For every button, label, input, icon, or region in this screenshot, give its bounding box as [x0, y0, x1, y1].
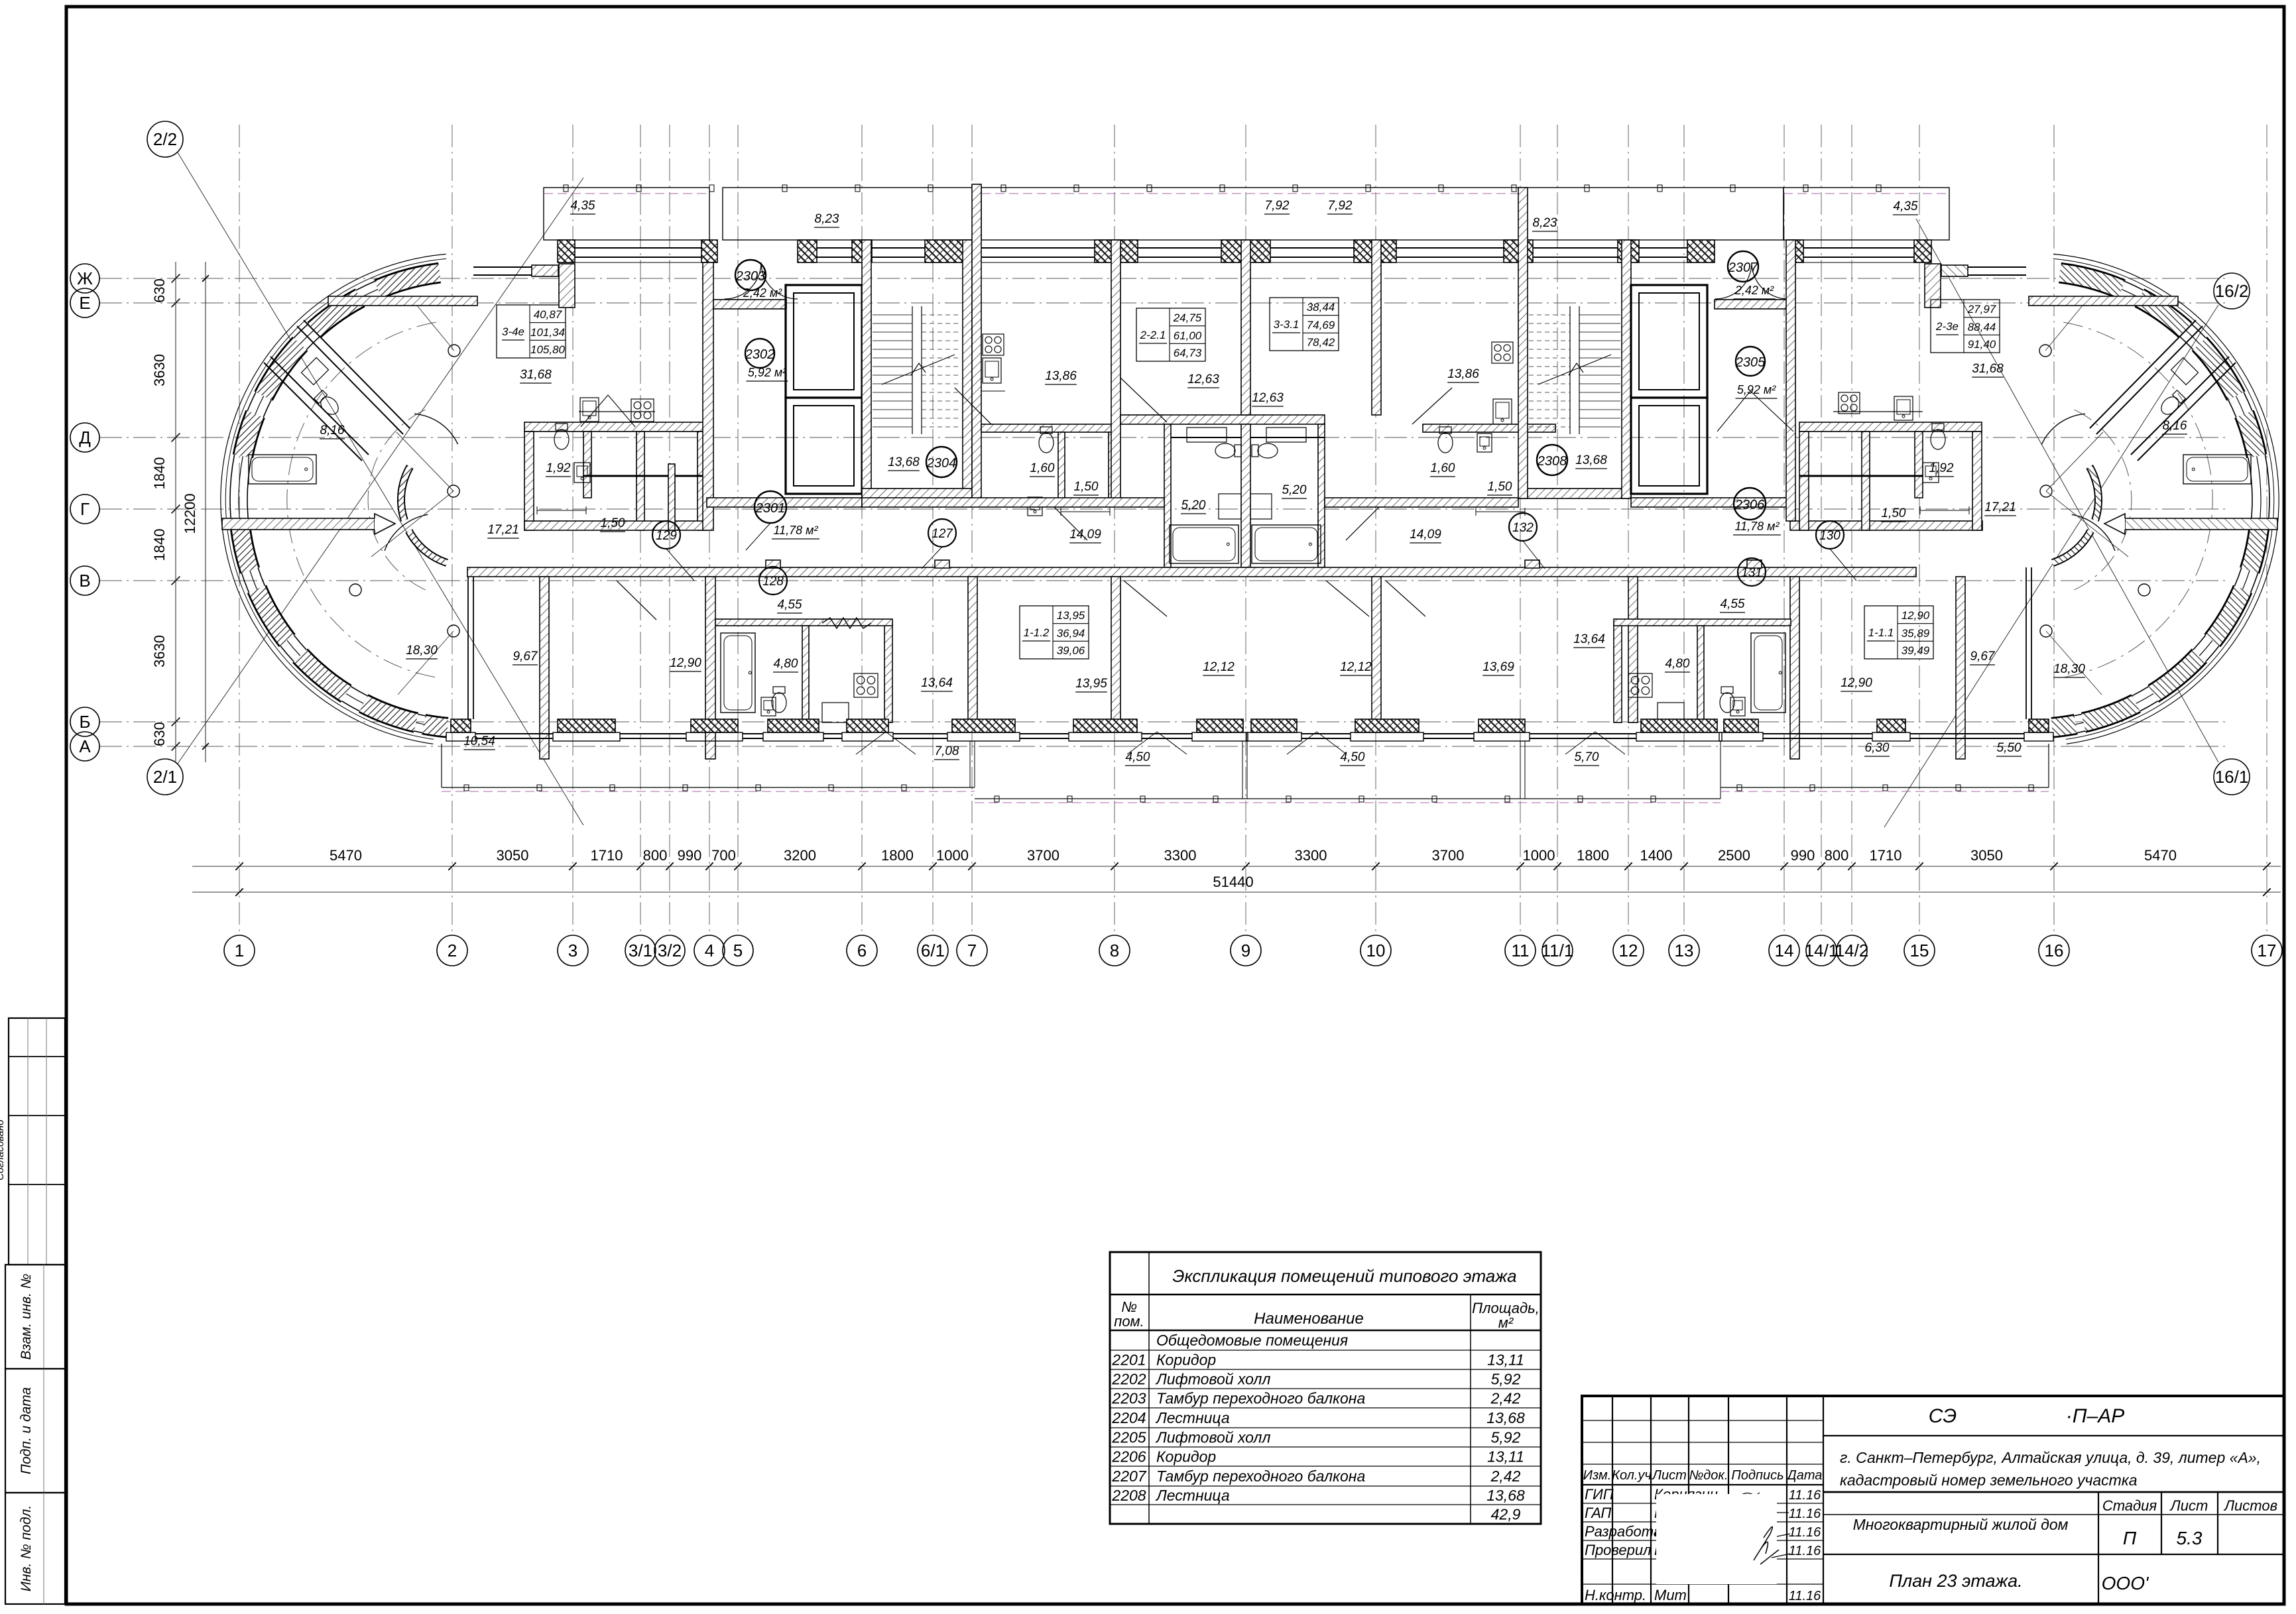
svg-text:Согласовано: Согласовано	[0, 1120, 6, 1181]
svg-text:м²: м²	[1498, 1314, 1514, 1331]
svg-text:пом.: пом.	[1114, 1313, 1144, 1330]
svg-text:4,55: 4,55	[778, 598, 802, 612]
svg-text:17: 17	[2258, 941, 2277, 960]
svg-text:2202: 2202	[1111, 1371, 1146, 1388]
svg-text:4: 4	[705, 941, 714, 960]
svg-text:13,69: 13,69	[1482, 660, 1514, 674]
svg-text:11.16: 11.16	[1789, 1488, 1821, 1503]
svg-text:11: 11	[1512, 941, 1530, 960]
svg-text:8: 8	[1110, 941, 1119, 960]
svg-text:2,42: 2,42	[1490, 1390, 1521, 1407]
svg-text:П: П	[2123, 1528, 2137, 1548]
svg-text:5,92 м²: 5,92 м²	[748, 366, 787, 379]
svg-text:990: 990	[1791, 847, 1815, 864]
svg-text:3050: 3050	[497, 847, 529, 864]
svg-text:1,60: 1,60	[1030, 461, 1055, 475]
svg-text:8,23: 8,23	[815, 212, 839, 226]
svg-text:88,44: 88,44	[1968, 321, 1996, 333]
svg-text:990: 990	[678, 847, 702, 864]
svg-text:Проверил: Проверил	[1585, 1542, 1652, 1558]
svg-text:5.3: 5.3	[2177, 1528, 2203, 1548]
svg-text:8,16: 8,16	[320, 424, 345, 437]
svg-text:16/1: 16/1	[2215, 767, 2249, 787]
svg-text:2/2: 2/2	[153, 129, 177, 149]
svg-text:Инв. № подл.: Инв. № подл.	[19, 1505, 34, 1591]
svg-text:4,35: 4,35	[1894, 200, 1918, 213]
svg-text:Тамбур переходного балкона: Тамбур переходного балкона	[1156, 1390, 1365, 1407]
svg-text:1800: 1800	[881, 847, 914, 864]
svg-text:Лифтовой холл: Лифтовой холл	[1155, 1429, 1270, 1446]
svg-text:128: 128	[762, 575, 784, 589]
svg-text:13,68: 13,68	[1575, 453, 1607, 467]
svg-text:Н.контр.: Н.контр.	[1585, 1587, 1646, 1603]
svg-text:Г: Г	[80, 499, 90, 519]
svg-text:3300: 3300	[1164, 847, 1197, 864]
svg-text:3/2: 3/2	[658, 941, 682, 960]
svg-text:12: 12	[1619, 941, 1638, 960]
svg-text:27,97: 27,97	[1967, 303, 1996, 316]
svg-text:Лист: Лист	[2169, 1497, 2208, 1514]
svg-text:ГАП: ГАП	[1585, 1505, 1611, 1521]
svg-text:12200: 12200	[182, 493, 198, 534]
svg-text:10,54: 10,54	[463, 734, 495, 748]
svg-text:4,80: 4,80	[774, 657, 798, 671]
svg-text:9: 9	[1241, 941, 1250, 960]
svg-text:1,92: 1,92	[1929, 461, 1954, 475]
svg-text:3200: 3200	[784, 847, 816, 864]
svg-text:78,42: 78,42	[1307, 336, 1335, 349]
svg-text:11,78 м²: 11,78 м²	[773, 524, 818, 537]
svg-text:12,63: 12,63	[1187, 373, 1219, 386]
svg-text:2500: 2500	[1718, 847, 1750, 864]
svg-text:3050: 3050	[1970, 847, 2003, 864]
svg-text:2206: 2206	[1111, 1448, 1146, 1466]
svg-text:14,09: 14,09	[1069, 528, 1101, 542]
svg-text:18,30: 18,30	[2053, 662, 2085, 676]
svg-text:14/1: 14/1	[1805, 941, 1839, 960]
svg-text:№док.: №док.	[1689, 1468, 1728, 1483]
svg-text:12,63: 12,63	[1252, 391, 1284, 405]
svg-text:Тамбур переходного балкона: Тамбур переходного балкона	[1156, 1468, 1365, 1485]
svg-text:кадастровый номер земельного у: кадастровый номер земельного участка	[1840, 1471, 2138, 1489]
svg-text:39,06: 39,06	[1057, 644, 1085, 657]
svg-text:7,92: 7,92	[1328, 199, 1353, 213]
svg-text:3-4е: 3-4е	[502, 325, 524, 338]
svg-text:1800: 1800	[1577, 847, 1609, 864]
svg-text:1,92: 1,92	[546, 461, 571, 475]
svg-text:1,50: 1,50	[1074, 480, 1099, 494]
svg-text:5,20: 5,20	[1282, 483, 1307, 497]
svg-text:12,12: 12,12	[1203, 660, 1235, 674]
svg-text:Многоквартирный жилой дом: Многоквартирный жилой дом	[1853, 1516, 2069, 1533]
svg-text:16: 16	[2045, 941, 2064, 960]
svg-text:12,90: 12,90	[670, 656, 701, 670]
svg-text:13,68: 13,68	[1486, 1409, 1525, 1426]
svg-text:13,86: 13,86	[1045, 369, 1077, 383]
svg-text:1,50: 1,50	[601, 516, 625, 530]
svg-text:Лифтовой холл: Лифтовой холл	[1155, 1371, 1270, 1388]
svg-text:6,30: 6,30	[1865, 741, 1890, 755]
svg-text:630: 630	[151, 722, 168, 746]
svg-text:г. Санкт–Петербург, Алтайская: г. Санкт–Петербург, Алтайская улица, д. …	[1840, 1449, 2261, 1466]
svg-text:2-3е: 2-3е	[1935, 320, 1959, 333]
svg-text:2,42 м²: 2,42 м²	[743, 286, 782, 300]
svg-text:12,90: 12,90	[1902, 609, 1930, 622]
svg-text:ГИП: ГИП	[1585, 1486, 1614, 1503]
svg-text:4,80: 4,80	[1665, 657, 1690, 671]
svg-text:3630: 3630	[151, 635, 168, 667]
svg-text:2303: 2303	[735, 269, 766, 284]
svg-text:2308: 2308	[1537, 454, 1567, 469]
svg-text:5470: 5470	[2144, 847, 2177, 864]
svg-text:11,78 м²: 11,78 м²	[1734, 520, 1780, 533]
svg-text:2301: 2301	[755, 501, 786, 516]
svg-text:1000: 1000	[936, 847, 969, 864]
svg-text:3: 3	[568, 941, 577, 960]
svg-text:5470: 5470	[330, 847, 362, 864]
svg-text:5: 5	[733, 941, 743, 960]
svg-text:131: 131	[1741, 566, 1762, 580]
svg-text:40,87: 40,87	[534, 308, 562, 321]
svg-text:ООО': ООО'	[2102, 1573, 2149, 1593]
svg-text:2304: 2304	[926, 456, 957, 471]
svg-text:13,68: 13,68	[888, 455, 920, 469]
svg-text:64,73: 64,73	[1174, 347, 1202, 359]
svg-text:39,49: 39,49	[1902, 644, 1930, 657]
svg-text:7,92: 7,92	[1265, 199, 1290, 213]
svg-text:2205: 2205	[1111, 1429, 1146, 1446]
svg-text:Стадия: Стадия	[2102, 1497, 2157, 1514]
svg-text:·П–АР: ·П–АР	[2066, 1405, 2124, 1427]
svg-text:2203: 2203	[1111, 1390, 1146, 1407]
svg-text:Экспликация помещений типовог: Экспликация помещений типового этажа	[1172, 1266, 1516, 1286]
svg-text:Д: Д	[79, 428, 91, 447]
svg-text:14: 14	[1775, 941, 1794, 960]
svg-text:В: В	[79, 571, 90, 591]
svg-text:3/1: 3/1	[629, 941, 652, 960]
svg-text:Е: Е	[79, 293, 90, 313]
svg-text:74,69: 74,69	[1307, 319, 1335, 331]
svg-text:2201: 2201	[1111, 1352, 1146, 1369]
svg-text:800: 800	[643, 847, 668, 864]
svg-text:127: 127	[932, 527, 953, 541]
svg-text:2-2.1: 2-2.1	[1140, 329, 1166, 341]
svg-text:Дата: Дата	[1786, 1468, 1823, 1483]
svg-text:17,21: 17,21	[487, 523, 519, 537]
svg-text:17,21: 17,21	[1984, 500, 2016, 514]
svg-text:12,90: 12,90	[1841, 676, 1872, 690]
svg-text:А: А	[79, 736, 91, 756]
svg-text:5,70: 5,70	[1575, 750, 1599, 764]
svg-text:7: 7	[967, 941, 977, 960]
svg-text:3700: 3700	[1432, 847, 1465, 864]
svg-text:3630: 3630	[151, 354, 168, 386]
svg-text:7,08: 7,08	[935, 744, 959, 758]
svg-text:1-1.1: 1-1.1	[1868, 626, 1894, 639]
svg-text:13,11: 13,11	[1487, 1352, 1524, 1369]
svg-text:13,68: 13,68	[1486, 1487, 1525, 1504]
svg-text:5,20: 5,20	[1181, 498, 1206, 512]
svg-text:2: 2	[448, 941, 457, 960]
svg-text:1710: 1710	[1870, 847, 1902, 864]
svg-text:13,95: 13,95	[1075, 677, 1107, 691]
svg-text:5,92: 5,92	[1491, 1371, 1521, 1388]
svg-text:36,94: 36,94	[1057, 627, 1085, 640]
svg-text:1400: 1400	[1640, 847, 1673, 864]
svg-text:Мит: Мит	[1654, 1587, 1687, 1603]
svg-text:105,80: 105,80	[530, 343, 566, 356]
svg-text:2,42: 2,42	[1490, 1468, 1521, 1485]
svg-text:42,9: 42,9	[1491, 1506, 1521, 1523]
svg-text:1,50: 1,50	[1882, 506, 1906, 520]
svg-text:91,40: 91,40	[1968, 338, 1996, 351]
svg-text:2207: 2207	[1111, 1468, 1146, 1485]
svg-text:15: 15	[1910, 941, 1929, 960]
svg-text:630: 630	[151, 278, 168, 303]
svg-text:800: 800	[1825, 847, 1849, 864]
svg-text:5,92: 5,92	[1491, 1429, 1521, 1446]
svg-text:5,50: 5,50	[1997, 741, 2022, 755]
svg-text:1: 1	[235, 941, 244, 960]
svg-text:Б: Б	[79, 712, 90, 732]
svg-text:38,44: 38,44	[1307, 301, 1335, 314]
svg-text:Изм.: Изм.	[1583, 1468, 1612, 1483]
svg-text:132: 132	[1512, 521, 1534, 535]
svg-text:2208: 2208	[1111, 1487, 1146, 1504]
svg-text:1840: 1840	[151, 529, 168, 561]
svg-text:129: 129	[656, 529, 677, 543]
svg-text:61,00: 61,00	[1174, 329, 1202, 342]
svg-text:1000: 1000	[1523, 847, 1555, 864]
svg-text:Коридор: Коридор	[1156, 1352, 1216, 1369]
svg-text:18,30: 18,30	[406, 644, 438, 658]
svg-text:1-1.2: 1-1.2	[1024, 626, 1050, 639]
svg-text:4,35: 4,35	[571, 199, 595, 213]
svg-text:Лист: Лист	[1651, 1468, 1687, 1483]
svg-text:6: 6	[857, 941, 867, 960]
svg-text:Лестница: Лестница	[1155, 1487, 1230, 1504]
svg-text:2302: 2302	[745, 347, 775, 362]
svg-text:2307: 2307	[1728, 260, 1758, 275]
svg-text:13,64: 13,64	[1573, 632, 1605, 646]
svg-text:Общедомовые помещения: Общедомовые помещения	[1156, 1332, 1348, 1349]
svg-text:24,75: 24,75	[1173, 312, 1202, 324]
svg-text:1,60: 1,60	[1431, 461, 1455, 475]
svg-text:101,34: 101,34	[530, 326, 565, 339]
svg-text:4,55: 4,55	[1721, 597, 1745, 611]
svg-text:2306: 2306	[1734, 498, 1765, 512]
svg-text:3700: 3700	[1027, 847, 1059, 864]
svg-text:6/1: 6/1	[921, 941, 945, 960]
svg-text:13,11: 13,11	[1487, 1448, 1524, 1466]
svg-text:2305: 2305	[1735, 355, 1766, 370]
svg-text:Ж: Ж	[77, 268, 93, 288]
svg-text:8,16: 8,16	[2163, 419, 2187, 433]
svg-text:35,89: 35,89	[1902, 627, 1930, 640]
svg-text:11.16: 11.16	[1789, 1507, 1821, 1521]
svg-text:11.16: 11.16	[1789, 1525, 1821, 1540]
svg-text:2204: 2204	[1111, 1409, 1146, 1426]
svg-text:1,50: 1,50	[1488, 480, 1512, 494]
svg-text:2,42 м²: 2,42 м²	[1734, 284, 1774, 297]
svg-text:СЭ: СЭ	[1929, 1405, 1957, 1427]
svg-text:13,64: 13,64	[921, 676, 953, 690]
svg-text:12,12: 12,12	[1340, 660, 1372, 674]
svg-text:Кол.уч: Кол.уч	[1612, 1468, 1652, 1483]
svg-text:14,09: 14,09	[1410, 528, 1441, 542]
svg-text:3300: 3300	[1295, 847, 1327, 864]
svg-text:Взам. инв. №: Взам. инв. №	[19, 1274, 34, 1360]
svg-text:Коридор: Коридор	[1156, 1448, 1216, 1466]
svg-text:5,92 м²: 5,92 м²	[1737, 383, 1776, 396]
svg-text:700: 700	[711, 847, 736, 864]
svg-text:Подп. и дата: Подп. и дата	[19, 1387, 34, 1474]
svg-text:2/1: 2/1	[153, 767, 177, 787]
svg-text:Листов: Листов	[2223, 1497, 2277, 1514]
svg-text:11.16: 11.16	[1789, 1589, 1821, 1603]
svg-text:51440: 51440	[1213, 874, 1253, 890]
svg-text:Лестница: Лестница	[1155, 1409, 1230, 1426]
svg-text:3-3.1: 3-3.1	[1274, 318, 1299, 331]
svg-text:13: 13	[1675, 941, 1694, 960]
svg-text:11/1: 11/1	[1541, 941, 1574, 960]
svg-text:13,95: 13,95	[1057, 609, 1085, 622]
svg-text:9,67: 9,67	[513, 650, 538, 663]
svg-text:13,86: 13,86	[1447, 367, 1479, 381]
svg-text:10: 10	[1366, 941, 1386, 960]
svg-text:14/2: 14/2	[1835, 941, 1869, 960]
svg-text:16/2: 16/2	[2215, 281, 2249, 301]
svg-text:31,68: 31,68	[520, 368, 552, 382]
svg-text:Подпись: Подпись	[1731, 1468, 1783, 1483]
svg-text:31,68: 31,68	[1972, 362, 2004, 376]
svg-text:1840: 1840	[151, 457, 168, 490]
svg-text:130: 130	[1819, 529, 1841, 543]
svg-text:11.16: 11.16	[1789, 1544, 1821, 1558]
svg-text:Наименование: Наименование	[1254, 1310, 1364, 1328]
svg-text:1710: 1710	[591, 847, 623, 864]
svg-text:План 23 этажа.: План 23 этажа.	[1889, 1571, 2022, 1591]
svg-text:9,67: 9,67	[1970, 650, 1996, 663]
svg-text:8,23: 8,23	[1533, 216, 1557, 230]
